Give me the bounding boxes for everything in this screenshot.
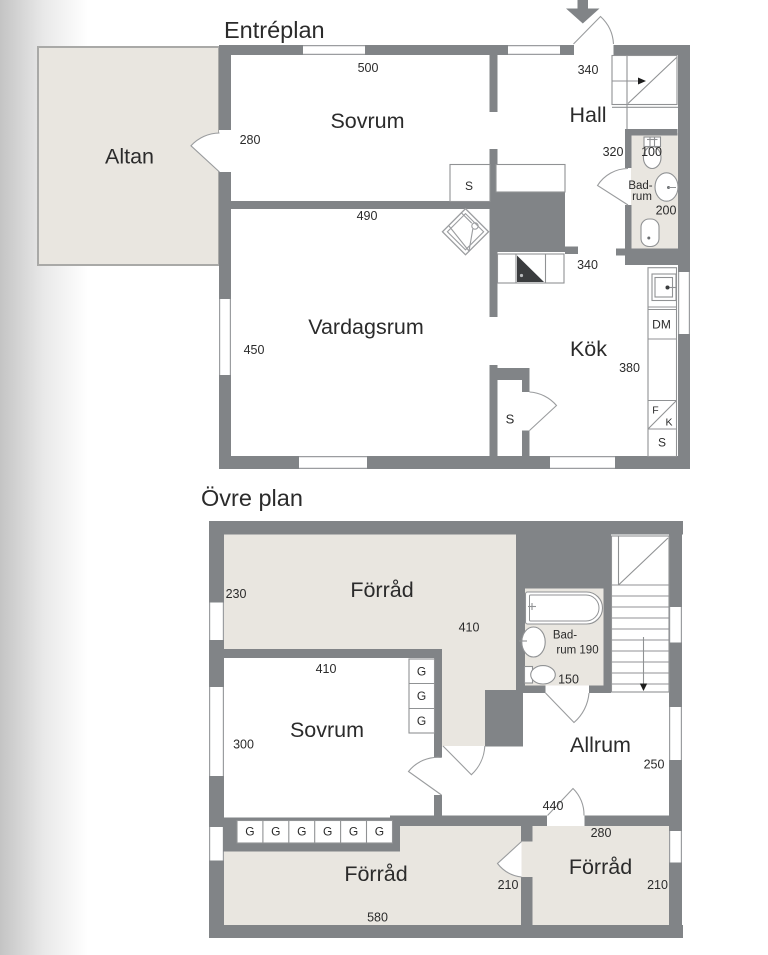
svg-text:Hall: Hall — [569, 103, 606, 127]
svg-text:DM: DM — [652, 318, 671, 332]
svg-text:Kök: Kök — [570, 337, 607, 361]
svg-text:100: 100 — [641, 145, 662, 159]
svg-text:440: 440 — [543, 799, 564, 813]
svg-text:G: G — [297, 825, 306, 839]
svg-text:Förråd: Förråd — [569, 855, 632, 879]
svg-text:rum 190: rum 190 — [556, 645, 598, 657]
svg-text:Entréplan: Entréplan — [224, 17, 325, 43]
svg-text:S: S — [506, 412, 515, 427]
svg-text:150: 150 — [558, 673, 579, 687]
svg-text:Allrum: Allrum — [570, 733, 631, 757]
svg-text:580: 580 — [367, 911, 388, 925]
svg-text:Övre plan: Övre plan — [201, 485, 303, 511]
svg-text:Bad-: Bad- — [553, 630, 577, 642]
svg-text:280: 280 — [240, 133, 261, 147]
svg-text:450: 450 — [244, 343, 265, 357]
svg-text:Sovrum: Sovrum — [290, 718, 364, 742]
svg-text:K: K — [665, 417, 672, 429]
svg-text:490: 490 — [357, 209, 378, 223]
svg-text:S: S — [465, 179, 473, 193]
svg-text:500: 500 — [358, 61, 379, 75]
svg-text:G: G — [349, 825, 358, 839]
svg-text:G: G — [417, 714, 426, 728]
svg-text:Sovrum: Sovrum — [330, 109, 404, 133]
svg-text:250: 250 — [644, 758, 665, 772]
svg-text:G: G — [417, 689, 426, 703]
svg-text:340: 340 — [577, 258, 598, 272]
svg-text:230: 230 — [226, 587, 247, 601]
svg-text:G: G — [271, 825, 280, 839]
svg-text:Altan: Altan — [105, 145, 154, 169]
svg-text:340: 340 — [578, 63, 599, 77]
svg-text:F: F — [652, 405, 658, 417]
svg-text:G: G — [375, 825, 384, 839]
svg-text:410: 410 — [316, 662, 337, 676]
svg-text:Vardagsrum: Vardagsrum — [308, 315, 424, 339]
svg-text:G: G — [323, 825, 332, 839]
svg-text:210: 210 — [647, 878, 668, 892]
svg-text:280: 280 — [591, 826, 612, 840]
svg-text:320: 320 — [603, 145, 624, 159]
svg-text:300: 300 — [233, 738, 254, 752]
svg-text:210: 210 — [498, 878, 519, 892]
svg-text:rum: rum — [632, 191, 652, 203]
svg-text:Förråd: Förråd — [350, 578, 413, 602]
svg-text:380: 380 — [619, 361, 640, 375]
svg-text:S: S — [658, 436, 666, 450]
svg-text:410: 410 — [459, 621, 480, 635]
svg-text:Förråd: Förråd — [344, 862, 407, 886]
svg-text:200: 200 — [656, 204, 677, 218]
svg-text:G: G — [417, 665, 426, 679]
svg-text:G: G — [245, 825, 254, 839]
